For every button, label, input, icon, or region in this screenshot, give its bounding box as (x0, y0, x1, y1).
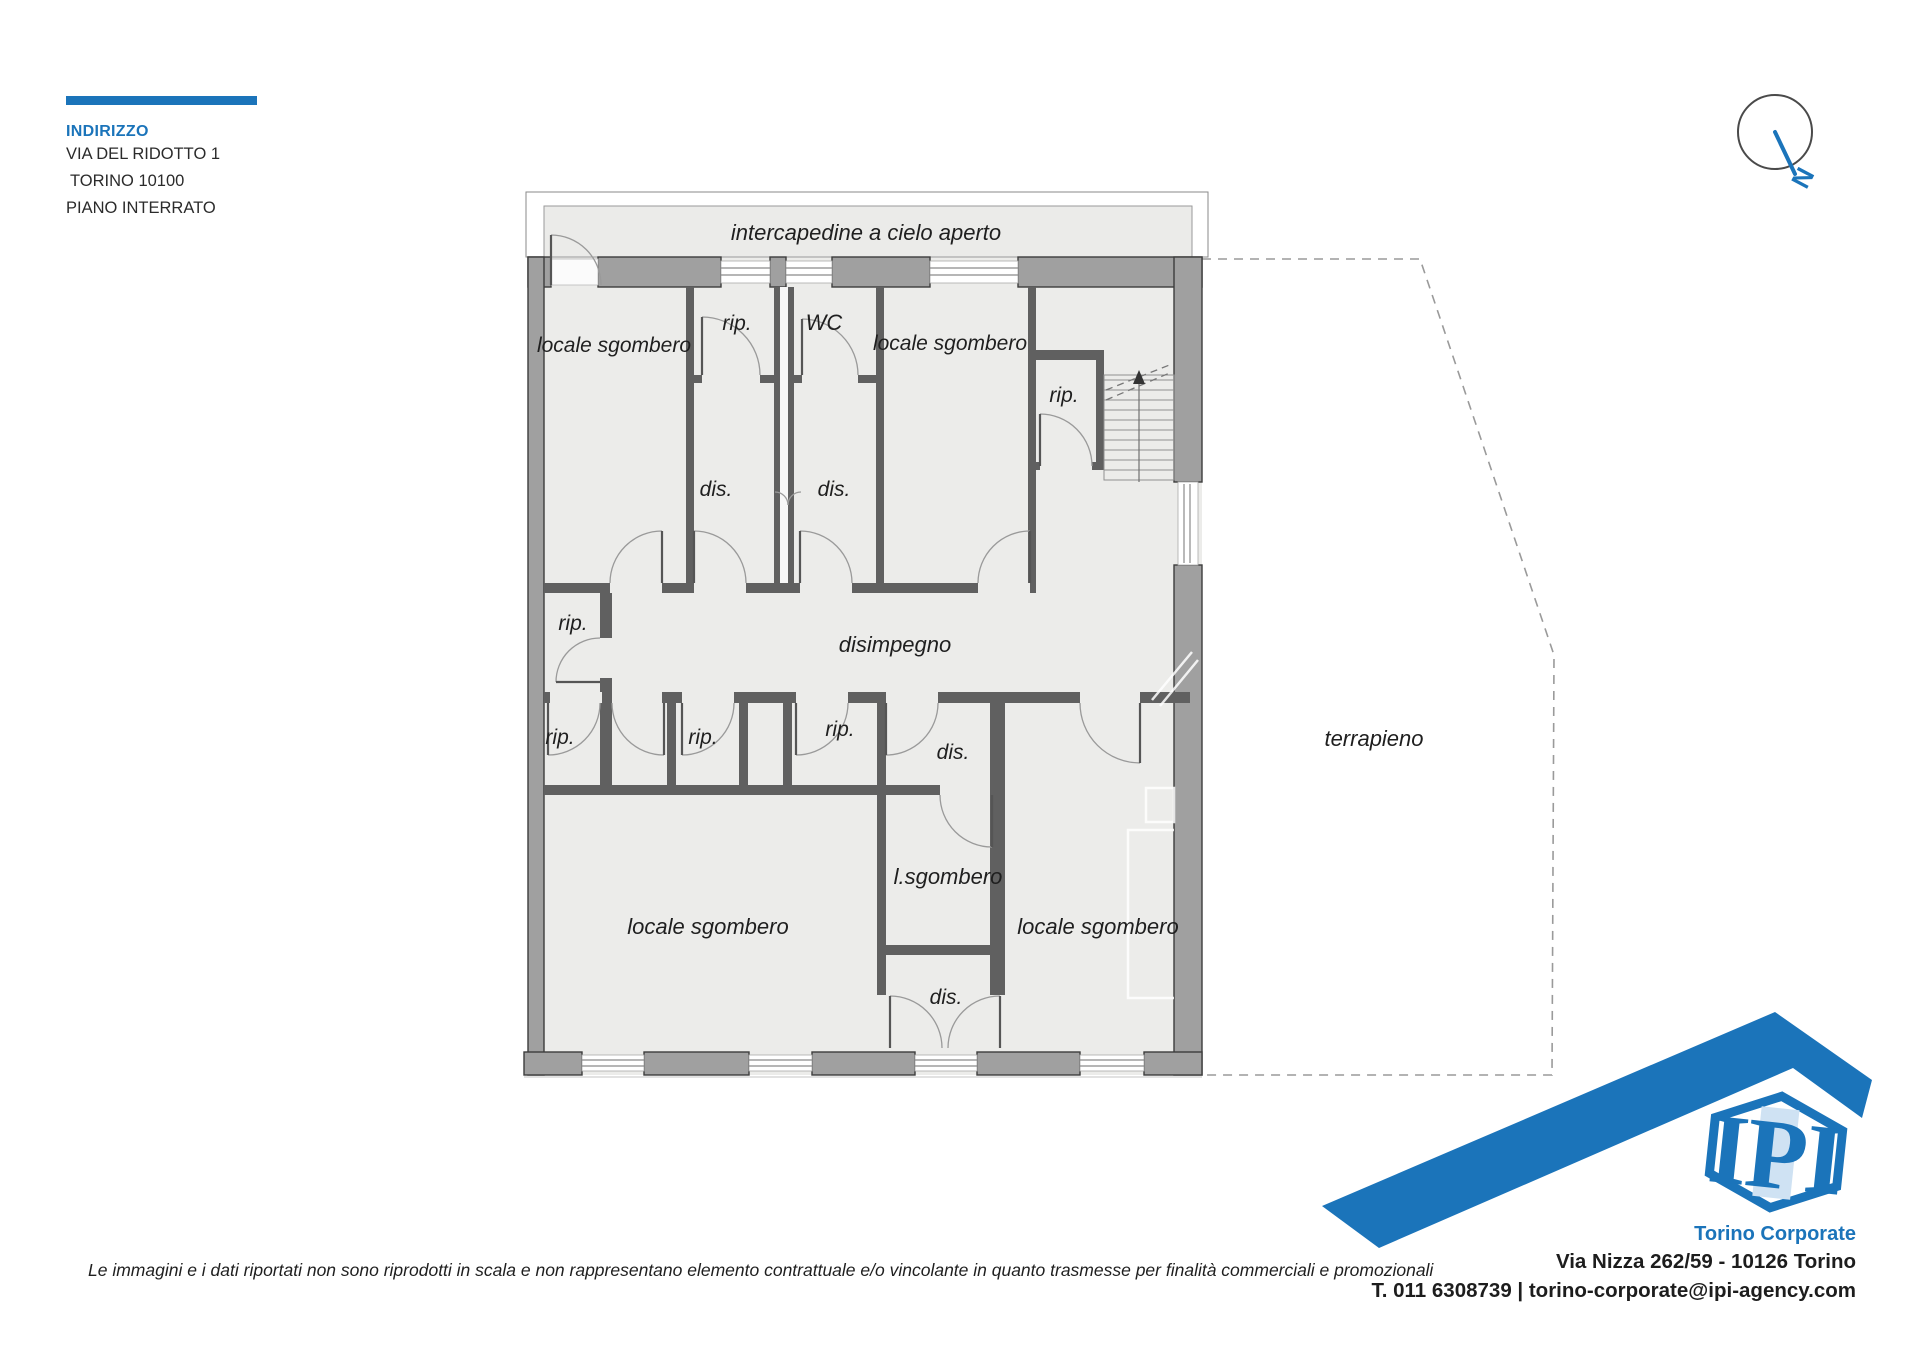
room-label-rip-top: rip. (722, 312, 751, 335)
room-label-wc: WC (806, 310, 843, 335)
ipi-logo-text: IPI (1704, 1092, 1848, 1216)
room-label-intercapedine: intercapedine a cielo aperto (731, 220, 1001, 245)
brand-office: Torino Corporate (1694, 1223, 1856, 1245)
room-label-rip-mid-left: rip. (558, 612, 587, 635)
room-label-locale-sgombero-ne: locale sgombero (873, 332, 1027, 355)
room-label-l-sgombero: l.sgombero (894, 864, 1003, 889)
room-label-dis-mid: dis. (937, 741, 970, 764)
plan-canvas: N (0, 0, 1920, 1358)
room-label-dis-bottom: dis. (930, 986, 963, 1009)
brand-address: Via Nizza 262/59 - 10126 Torino (1556, 1250, 1856, 1273)
room-label-terrapieno: terrapieno (1324, 726, 1423, 751)
floorplan-page: INDIRIZZO VIA DEL RIDOTTO 1 TORINO 10100… (0, 0, 1920, 1358)
room-label-rip-stairs: rip. (1049, 384, 1078, 407)
brand-contacts: T. 011 6308739 | torino-corporate@ipi-ag… (1372, 1279, 1857, 1302)
shaft (780, 287, 788, 583)
terrapieno-boundary-dashed (1202, 259, 1554, 1075)
room-label-disimpegno: disimpegno (839, 632, 952, 657)
compass: N (1738, 95, 1820, 193)
room-label-rip-row-left: rip. (545, 726, 574, 749)
room-label-locale-sgombero-se: locale sgombero (1017, 914, 1178, 939)
brand-footer: IPI Torino Corporate Via Nizza 262/59 - … (1322, 1012, 1872, 1302)
disclaimer-text: Le immagini e i dati riportati non sono … (88, 1260, 1434, 1280)
room-label-locale-sgombero-nw: locale sgombero (537, 334, 691, 357)
room-label-dis-upper-left: dis. (700, 478, 733, 501)
floor-plan: intercapedine a cielo aperto locale sgom… (524, 192, 1554, 1077)
ipi-logo: IPI (1697, 1079, 1856, 1226)
room-label-rip-row-right: rip. (825, 718, 854, 741)
room-label-rip-row-mid: rip. (688, 726, 717, 749)
room-label-dis-upper-right: dis. (818, 478, 851, 501)
room-label-locale-sgombero-sw: locale sgombero (627, 914, 788, 939)
